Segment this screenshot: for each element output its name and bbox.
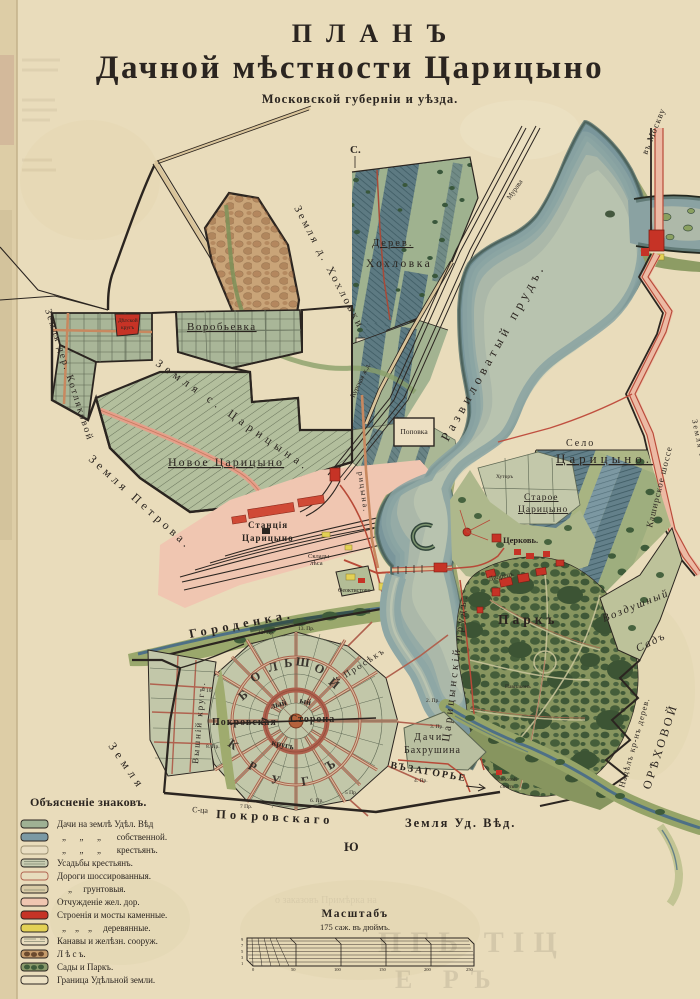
svg-text:„ грунтовыя.: „ грунтовыя.	[68, 884, 126, 894]
svg-text:Хуторъ: Хуторъ	[496, 474, 513, 480]
svg-text:10: 10	[206, 688, 212, 694]
svg-text:Дачи на землѣ Удѣл. Вѣд: Дачи на землѣ Удѣл. Вѣд	[57, 819, 154, 829]
svg-text:Усадьбы крестьянъ.: Усадьбы крестьянъ.	[57, 858, 133, 868]
svg-text:Сторона: Сторона	[290, 714, 335, 725]
svg-text:Канавы и желѣзн. сооруж.: Канавы и желѣзн. сооруж.	[57, 936, 158, 946]
svg-text:Масштабъ: Масштабъ	[321, 908, 388, 920]
svg-text:лѣса: лѣса	[310, 560, 323, 567]
svg-text:Дороги шоссированныя.: Дороги шоссированныя.	[57, 871, 151, 881]
svg-text:100: 100	[334, 967, 342, 972]
svg-text:снопъ: снопъ	[500, 784, 514, 790]
svg-text:175 саж. въ дюймъ.: 175 саж. въ дюймъ.	[320, 922, 390, 932]
svg-text:Царицыно: Царицыно	[242, 533, 294, 543]
svg-text:Ь: Ь	[284, 656, 293, 671]
svg-text:Станція: Станція	[248, 520, 288, 530]
svg-text:5 Пр.: 5 Пр.	[345, 790, 358, 796]
svg-text:Л ѣ с ъ.: Л ѣ с ъ.	[57, 949, 86, 959]
svg-text:Церковь.: Церковь.	[503, 535, 538, 545]
svg-text:С.: С.	[350, 144, 361, 156]
svg-text:1: 1	[241, 961, 243, 966]
svg-text:12. Пр.: 12. Пр.	[258, 630, 275, 636]
svg-text:250: 250	[466, 967, 474, 972]
svg-text:Дѣтской: Дѣтской	[118, 317, 138, 324]
svg-text:Новое Царицыно: Новое Царицыно	[168, 455, 284, 469]
svg-text:кругъ: кругъ	[121, 325, 134, 331]
svg-text:С-ца: С-ца	[192, 805, 209, 815]
svg-text:Е РЪ: Е РЪ	[395, 965, 503, 994]
svg-text:ПЛАНЪ: ПЛАНЪ	[292, 19, 461, 48]
svg-text:Бахрушина: Бахрушина	[404, 745, 461, 756]
svg-text:Земля Уд. Вѣд.: Земля Уд. Вѣд.	[405, 816, 516, 830]
svg-text:50: 50	[291, 967, 296, 972]
svg-text:4. Пр.: 4. Пр.	[414, 778, 428, 784]
svg-text:Воробьевка: Воробьевка	[187, 321, 257, 333]
svg-text:13. Пр.: 13. Пр.	[298, 626, 315, 632]
svg-text:Дачной мѣстности Царицыно: Дачной мѣстности Царицыно	[96, 50, 604, 86]
svg-text:Отчужденіе жел. дор.: Отчужденіе жел. дор.	[57, 897, 140, 907]
svg-text:150: 150	[379, 967, 387, 972]
svg-text:Ѳеоктистово: Ѳеоктистово	[338, 588, 371, 594]
svg-text:Склады: Склады	[308, 553, 330, 560]
svg-text:Дачи: Дачи	[414, 732, 443, 743]
svg-text:Граница Удѣльной земли.: Граница Удѣльной земли.	[57, 975, 155, 985]
svg-text:Павильонъ: Павильонъ	[505, 684, 531, 690]
svg-text:о заказовъ Примѣрка на: о заказовъ Примѣрка на	[275, 895, 377, 906]
svg-text:200: 200	[424, 967, 432, 972]
svg-text:Сады и Паркъ.: Сады и Паркъ.	[57, 962, 113, 972]
svg-text:„ „ „ собствен: „ „ „ собственной.	[62, 832, 167, 842]
svg-text:3. Пр.: 3. Пр.	[430, 724, 444, 730]
svg-text:Дерев.: Дерев.	[372, 238, 413, 249]
svg-text:Строенія и мосты каменные.: Строенія и мосты каменные.	[57, 910, 167, 920]
svg-text:„ „ „ крестьян: „ „ „ крестьянъ.	[62, 845, 158, 855]
svg-text:2. Пр.: 2. Пр.	[426, 698, 440, 704]
svg-text:Ш: Ш	[295, 654, 311, 670]
svg-text:Царицыно: Царицыно	[518, 505, 568, 515]
svg-text:Старое: Старое	[524, 493, 559, 503]
svg-text:Село: Село	[566, 438, 595, 449]
svg-text:Объясненіе знаковъ.: Объясненіе знаковъ.	[30, 795, 147, 809]
svg-text:8. Пр.: 8. Пр.	[206, 744, 220, 750]
svg-text:Паркъ: Паркъ	[498, 612, 558, 627]
svg-text:Хохловка: Хохловка	[366, 258, 432, 270]
svg-text:Ю: Ю	[344, 839, 359, 854]
svg-text:Поповка: Поповка	[400, 427, 428, 436]
svg-text:Царицыно.: Царицыно.	[556, 451, 653, 466]
svg-text:Московской губерніи и уѣзда.: Московской губерніи и уѣзда.	[262, 92, 458, 106]
svg-text:Золотой: Золотой	[498, 776, 517, 783]
svg-text:„ „ „ деревянные.: „ „ „ деревянные.	[62, 923, 151, 933]
svg-text:6. Пр.: 6. Пр.	[310, 798, 324, 804]
